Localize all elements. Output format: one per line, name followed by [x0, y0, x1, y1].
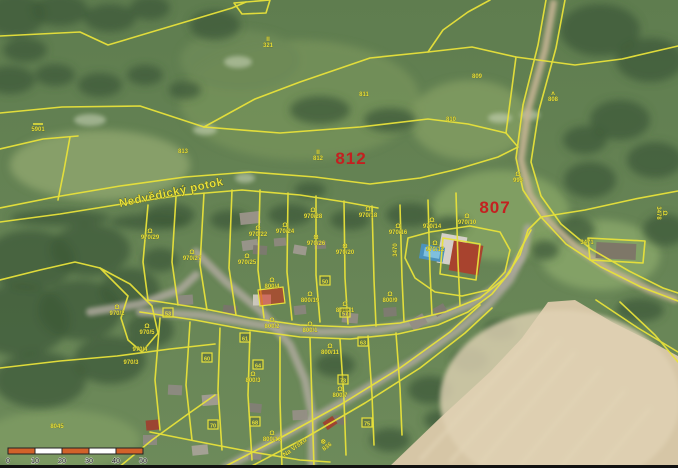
land-use-symbol: Ω [269, 430, 274, 437]
parcel-number-label: 970/18 [359, 213, 378, 219]
parcel-number-label: 808 [548, 97, 559, 103]
parcel-number-label: 5901 [31, 127, 45, 133]
land-use-symbol: Ω [661, 210, 668, 215]
house-roof [294, 305, 307, 315]
tree-canopy [531, 240, 559, 260]
parcel-number-label: 970/5 [139, 330, 155, 336]
land-use-symbol: Ω [307, 321, 312, 328]
parcel-number-label: 970/16 [389, 230, 408, 236]
land-use-symbol: Ω [429, 217, 434, 224]
land-use-symbol: Ω [342, 243, 347, 250]
parcel-number-label: 321 [263, 43, 274, 49]
land-use-symbol: Ω [250, 371, 255, 378]
scale-bar-segment [89, 448, 116, 454]
land-use-symbol: Ω [255, 225, 260, 232]
land-use-symbol: Ω [189, 249, 194, 256]
parcel-number-label: 970/10 [458, 220, 477, 226]
parcel-number-label: 970/24 [276, 229, 295, 235]
building-number-label: 64 [255, 364, 262, 370]
land-use-symbol: Ω [327, 343, 332, 350]
scale-tick-label: 50 [139, 456, 147, 465]
worn-grass-patch [224, 56, 252, 68]
land-use-symbol: Ω [464, 213, 469, 220]
parcel-number-label: 810 [446, 117, 457, 123]
parcel-number-label: 809 [472, 74, 483, 80]
building-number-label: 73 [340, 379, 346, 385]
map-viewport[interactable]: 5901II321813II812811810809ʌ808Ω993Ω34783… [0, 0, 678, 468]
building-number-label: 53 [165, 312, 171, 318]
parcel-number-label: 970/12 [426, 247, 445, 253]
scale-bar-segment [8, 448, 35, 454]
house-roof [292, 410, 308, 421]
parcel-number-label: 800/9 [382, 298, 398, 304]
parcel-number-label: 970/29 [141, 235, 160, 241]
land-use-symbol: Ω [365, 206, 370, 213]
scale-bar-segment [116, 448, 143, 454]
parcel-number-label: 812 [313, 156, 324, 162]
parcel-number-label: 3470 [393, 243, 399, 257]
building-number-label: 63 [360, 341, 366, 347]
land-use-symbol: Ω [310, 207, 315, 214]
parcel-number-label: 800/11 [321, 350, 340, 356]
tree-canopy [35, 64, 75, 86]
parcel-number-label: 970/14 [423, 224, 442, 230]
scale-tick-label: 0 [6, 456, 10, 465]
parcel-number-label: 993 [513, 178, 524, 184]
land-use-symbol: Ω [387, 291, 392, 298]
land-use-symbol: II [316, 149, 320, 156]
land-use-symbol: II [266, 36, 270, 43]
building-number-label: 60 [204, 357, 210, 363]
parcel-number-label: 800/3 [245, 378, 261, 384]
parcel-number-label: 970/25 [238, 260, 257, 266]
parcel-number-label: 800/2 [264, 324, 280, 330]
tree-canopy [563, 126, 607, 154]
scale-bar-segment [35, 448, 62, 454]
land-use-symbol: Ω [342, 301, 347, 308]
house-roof [202, 394, 219, 406]
house-roof [192, 444, 209, 456]
house-roof [143, 435, 157, 445]
building-number-label: 68 [252, 421, 258, 427]
tree-canopy [169, 81, 201, 99]
house-roof [177, 294, 194, 305]
scale-tick-label: 40 [112, 456, 120, 465]
house-roof [383, 307, 397, 317]
parcel-number-label: 970/4 [132, 347, 148, 353]
parcel-number-label: 800/4 [264, 284, 280, 290]
land-use-symbol: Ω [515, 171, 520, 178]
land-use-symbol: Ω [147, 228, 152, 235]
red-parcel-number[interactable]: 807 [479, 198, 510, 217]
parcel-number-label: 970/27 [183, 256, 202, 262]
tree-canopy [290, 96, 350, 124]
building-number-label: 57 [342, 312, 348, 318]
worn-grass-patch [235, 173, 255, 183]
house-roof [596, 242, 637, 260]
land-use-symbol: Ω [307, 291, 312, 298]
worn-grass-patch [74, 114, 106, 126]
parcel-number-label: 970/26 [307, 241, 326, 247]
land-use-symbol: Ω [269, 317, 274, 324]
land-use-symbol: ʌ [551, 90, 555, 97]
tree-canopy [370, 428, 410, 452]
land-use-symbol: Ω [114, 304, 119, 311]
parcel-number-label: 811 [359, 92, 369, 98]
parcel-number-label: 800/7 [332, 393, 348, 399]
land-use-symbol: Ω [244, 253, 249, 260]
parcel-number-label: 800/19 [301, 298, 320, 304]
tree-canopy [564, 162, 616, 198]
tree-canopy [364, 108, 416, 132]
parcel-number-label: 813 [178, 149, 189, 155]
building-number-label: 75 [364, 422, 370, 428]
house-roof [239, 211, 260, 225]
land-use-symbol: Ω [313, 234, 318, 241]
parcel-number-label: 970/2 [109, 311, 125, 317]
tree-canopy [127, 65, 163, 85]
house-roof [168, 385, 183, 396]
land-use-symbol: Ω [144, 323, 149, 330]
building-number-label: 70 [210, 424, 216, 430]
scale-tick-label: 20 [58, 456, 66, 465]
parcel-number-label: 3471 [580, 240, 594, 246]
parcel-number-label: 970/22 [249, 232, 268, 238]
scale-bar-segment [62, 448, 89, 454]
parcel-number-label: 3478 [655, 206, 661, 220]
parcel-number-label: 8045 [50, 424, 64, 430]
land-use-symbol: Ω [432, 240, 437, 247]
land-use-symbol: Ω [269, 277, 274, 284]
tree-canopy [190, 10, 240, 40]
house-roof [248, 403, 262, 413]
land-use-symbol: Ω [282, 222, 287, 229]
building-number-label: 61 [242, 337, 248, 343]
house-roof [146, 419, 161, 430]
cadastral-aerial-map: 5901II321813II812811810809ʌ808Ω993Ω34783… [0, 0, 678, 468]
land-use-symbol: Ω [395, 223, 400, 230]
parcel-number-label: 970/20 [336, 250, 355, 256]
tree-canopy [315, 353, 355, 377]
tree-canopy [84, 4, 136, 32]
house-roof [253, 245, 268, 255]
scale-tick-label: 10 [31, 456, 39, 465]
tree-canopy [50, 224, 130, 276]
scale-tick-label: 30 [85, 456, 93, 465]
tree-canopy [78, 73, 122, 97]
parcel-number-label: 970/28 [304, 214, 323, 220]
parcel-number-label: 970/3 [123, 360, 139, 366]
red-parcel-number[interactable]: 812 [335, 149, 366, 168]
parcel-number-label: 800/10 [263, 437, 282, 443]
building-number-label: 50 [322, 280, 328, 286]
parcel-number-label: 800/1 [302, 328, 318, 334]
land-use-symbol: Ω [337, 386, 342, 393]
tree-canopy [3, 38, 47, 62]
house-roof [274, 237, 287, 246]
